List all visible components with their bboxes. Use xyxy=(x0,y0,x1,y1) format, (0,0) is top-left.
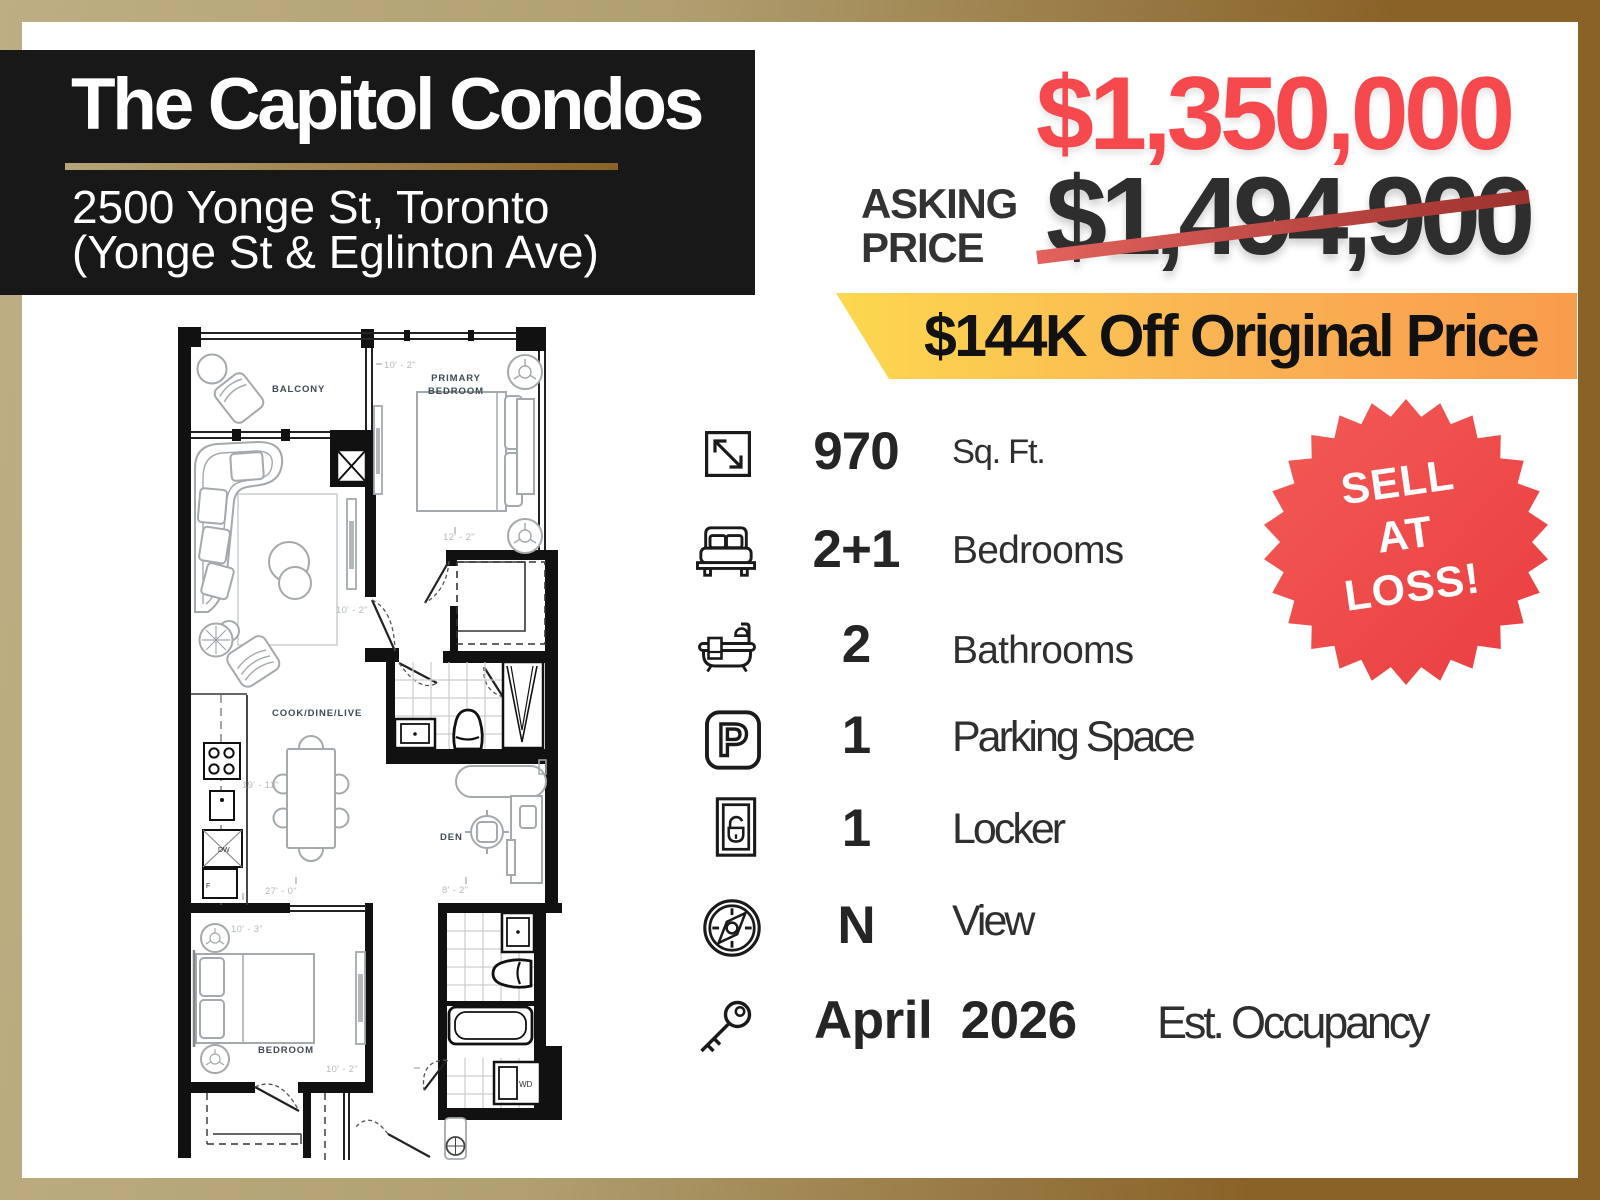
svg-text:DEN: DEN xyxy=(440,832,463,843)
svg-text:10' - 2": 10' - 2" xyxy=(384,360,416,371)
svg-text:PRIMARY: PRIMARY xyxy=(431,373,481,384)
svg-text:COOK/DINE/LIVE: COOK/DINE/LIVE xyxy=(272,708,362,719)
svg-text:19' - 11": 19' - 11" xyxy=(242,780,279,791)
svg-text:DW: DW xyxy=(218,847,230,854)
svg-text:P: P xyxy=(718,714,748,765)
svg-text:10' - 2": 10' - 2" xyxy=(326,1064,358,1075)
svg-text:12' - 2": 12' - 2" xyxy=(443,532,475,543)
svg-text:10' - 3": 10' - 3" xyxy=(231,924,263,935)
svg-text:BEDROOM: BEDROOM xyxy=(428,386,484,397)
svg-text:WD: WD xyxy=(519,1080,533,1089)
svg-text:8' - 2": 8' - 2" xyxy=(442,885,468,896)
svg-text:27' - 0": 27' - 0" xyxy=(265,886,297,897)
svg-text:10' - 2": 10' - 2" xyxy=(336,605,368,616)
svg-text:F: F xyxy=(206,883,210,890)
svg-text:BEDROOM: BEDROOM xyxy=(258,1045,314,1056)
svg-text:BALCONY: BALCONY xyxy=(272,384,325,395)
